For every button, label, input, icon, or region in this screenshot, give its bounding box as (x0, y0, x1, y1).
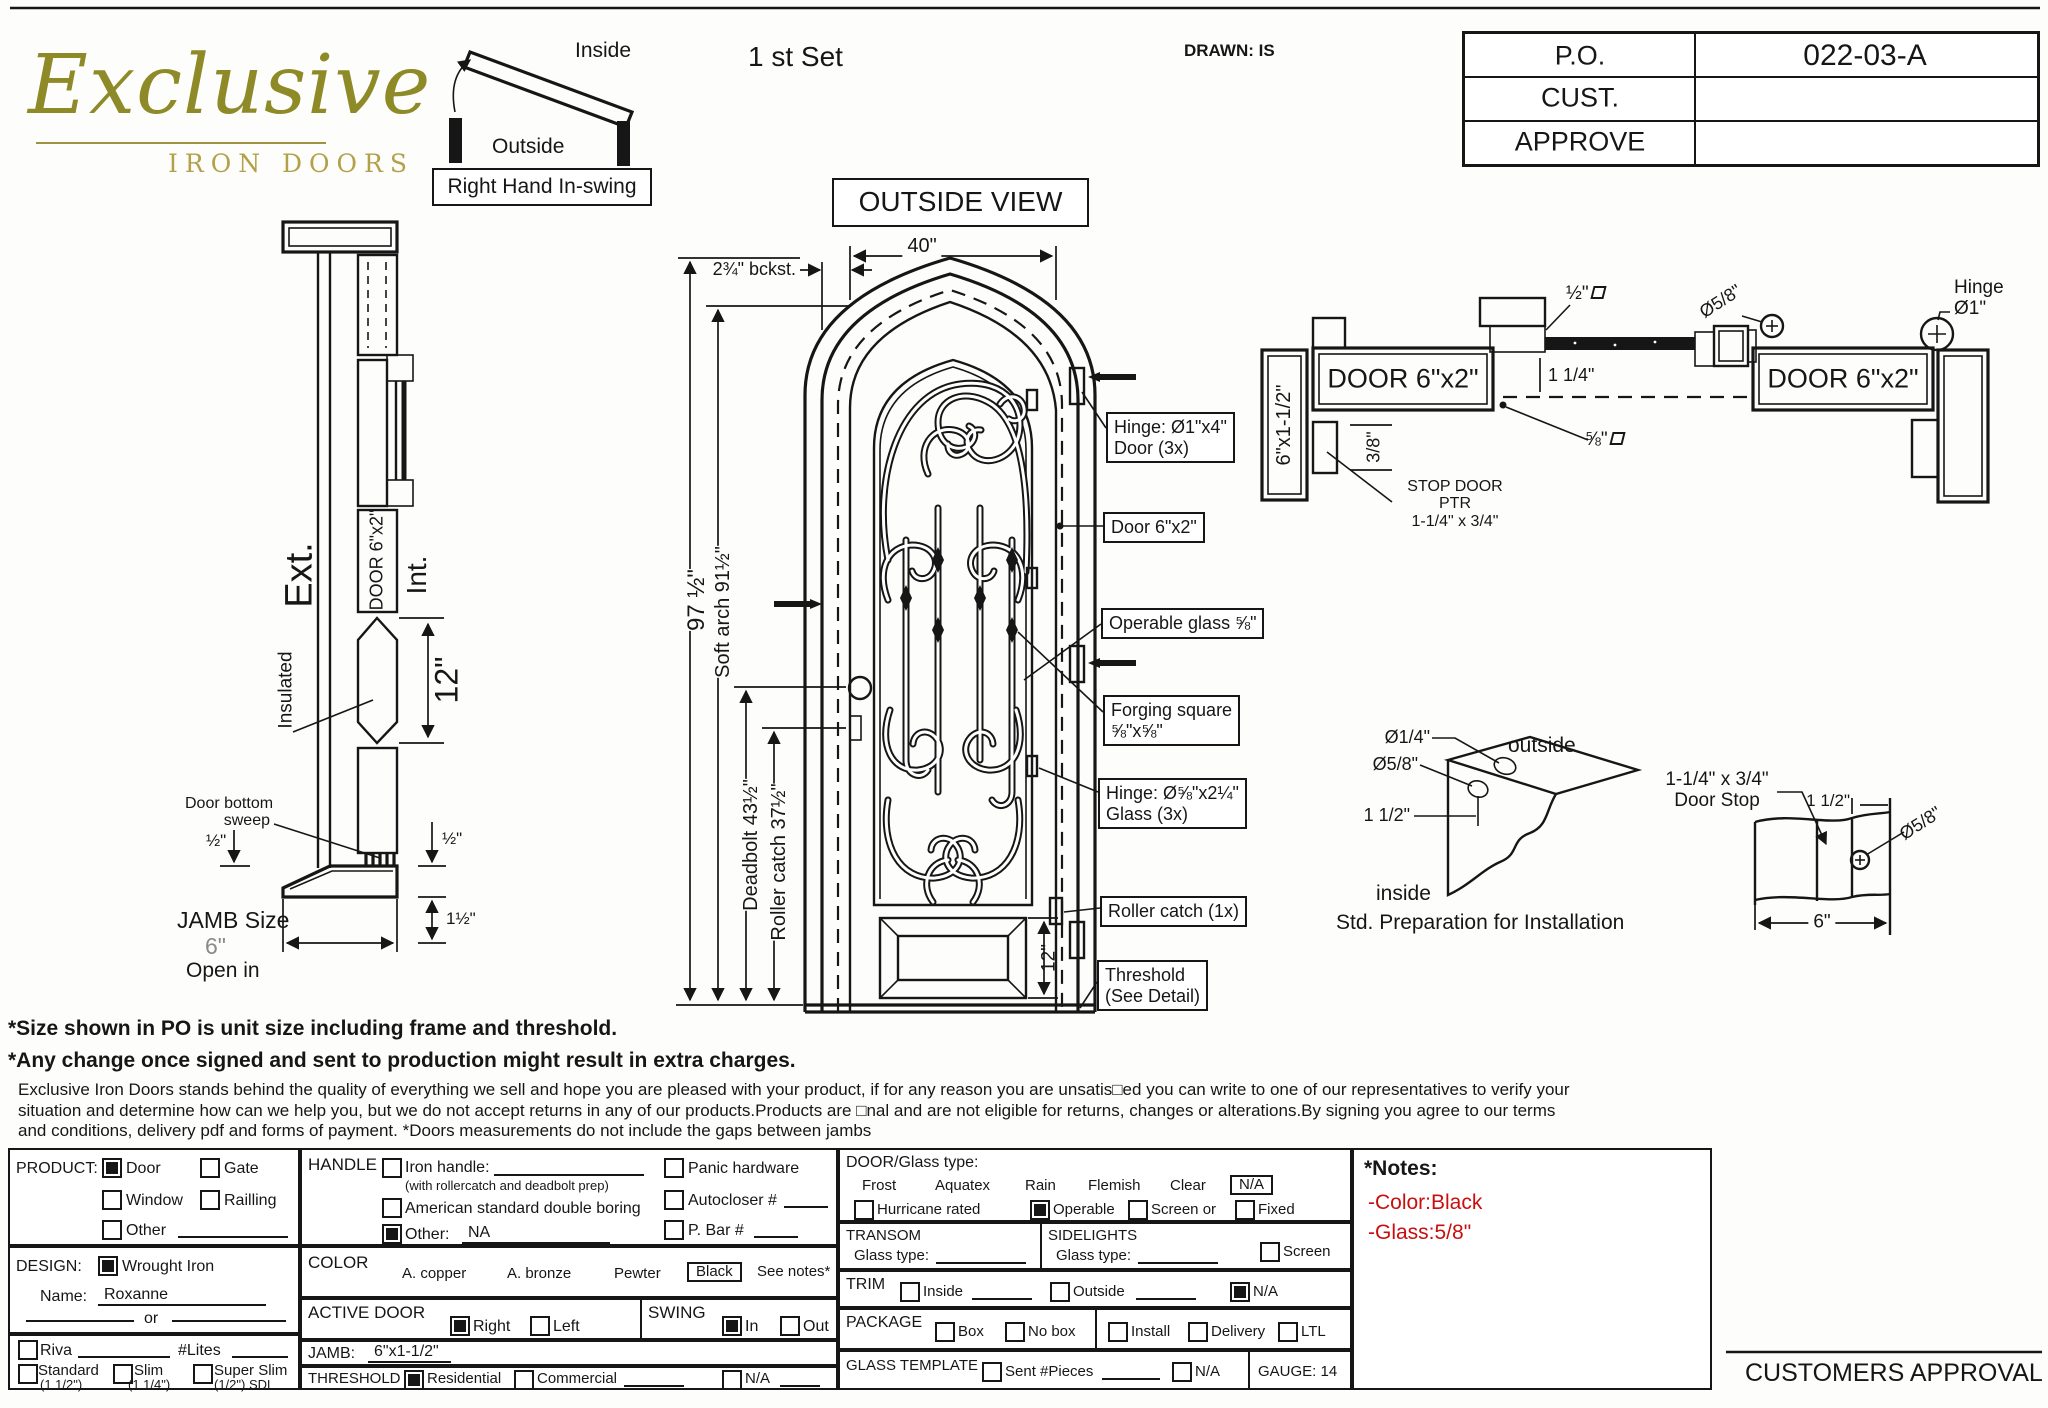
package-nobox-label: No box (1028, 1324, 1076, 1340)
customers-approval-label: CUSTOMERS APPROVAL (1745, 1360, 2043, 1387)
color-pewter[interactable]: Pewter (614, 1266, 661, 1282)
sidelights-glass-label: Glass type: (1056, 1248, 1131, 1264)
handle-other-value[interactable]: NA (462, 1224, 610, 1244)
dim-half-right: ½" (442, 830, 462, 848)
checkbox-screen-or[interactable] (1128, 1200, 1148, 1220)
iron-handle-note: (with rollercatch and deadbolt prep) (405, 1179, 609, 1193)
section-insulated-label: Insulated (277, 651, 298, 728)
pbar-label: P. Bar # (688, 1222, 744, 1239)
trim-outside-blank[interactable] (1136, 1298, 1196, 1300)
riva-blank[interactable] (78, 1356, 170, 1358)
checkbox-door[interactable] (102, 1158, 122, 1178)
handle-panel: HANDLE Iron handle: (with rollercatch an… (300, 1148, 838, 1246)
checkbox-swing-out[interactable] (780, 1316, 800, 1336)
sidelights-screen-label: Screen (1283, 1244, 1331, 1260)
checkbox-operable[interactable] (1030, 1200, 1050, 1220)
color-bronze[interactable]: A. bronze (507, 1266, 571, 1282)
product-panel: PRODUCT: Door Gate Window Railling Other (8, 1148, 300, 1246)
po-label: P.O. (1555, 41, 1606, 70)
stop-label: 1-1/4" x 3/4"Door Stop (1660, 770, 1774, 811)
deadbolt-dim: Deadbolt 43½" (741, 779, 763, 911)
stop-width-dim: 6" (1808, 913, 1835, 934)
package-ltl-label: LTL (1301, 1324, 1326, 1340)
color-label: COLOR (308, 1254, 368, 1272)
checkbox-trim-inside[interactable] (900, 1282, 920, 1302)
checkbox-riva[interactable] (18, 1340, 38, 1360)
design-size-panel: Riva #Lites Standard (1 1/2") Slim (1 1/… (8, 1334, 300, 1390)
autocloser-blank[interactable] (784, 1206, 828, 1208)
note-line-1: *Size shown in PO is unit size including… (8, 1018, 617, 1041)
square-stock-icon (1609, 432, 1625, 445)
checkbox-trim-outside[interactable] (1050, 1282, 1070, 1302)
product-railling-label: Railling (224, 1192, 276, 1209)
side-note-glass: -Glass:5/8" (1368, 1222, 1471, 1245)
po-table: P.O. 022-03-A CUST. APPROVE (1462, 31, 2040, 167)
side-notes-title: *Notes: (1364, 1158, 1438, 1181)
active-right-label: Right (473, 1318, 510, 1335)
callout-forging-square: Forging square⅝"x⅝" (1103, 695, 1240, 746)
roller-catch-dim: Roller catch 37½" (769, 783, 791, 940)
checkbox-active-left[interactable] (530, 1316, 550, 1336)
transom-label: TRANSOM (846, 1228, 921, 1244)
note-paragraph: Exclusive Iron Doors stands behind the q… (18, 1080, 1578, 1142)
prep-dia-quarter: Ø1/4" (1360, 728, 1430, 747)
checkbox-package-delivery[interactable] (1188, 1322, 1208, 1342)
swing-type-label: Right Hand In-swing (432, 168, 652, 206)
package-label: PACKAGE (846, 1314, 922, 1331)
glass-selected[interactable]: N/A (1230, 1175, 1273, 1195)
logo-subtitle: IRON DOORS (168, 150, 414, 177)
panel-height-dim: 12" (1040, 944, 1061, 972)
open-in-label: Open in (186, 960, 260, 983)
glass-flemish[interactable]: Flemish (1088, 1178, 1141, 1194)
checkbox-template-sent[interactable] (982, 1362, 1002, 1382)
glass-type-label: DOOR/Glass type: (846, 1154, 978, 1171)
side-note-color: -Color:Black (1368, 1192, 1482, 1215)
glass-clear[interactable]: Clear (1170, 1178, 1206, 1194)
design-name-label: Name: (40, 1288, 87, 1305)
jamb-size-label: JAMB Size (177, 908, 289, 933)
stop-dim-one-half: 1 1/2" (1798, 792, 1850, 810)
active-door-label: ACTIVE DOOR (308, 1304, 425, 1322)
standard-sub-label: (1 1/2") (40, 1378, 82, 1392)
sidelights-label: SIDELIGHTS (1048, 1228, 1137, 1244)
design-panel: DESIGN: Wrought Iron Name: Roxanne or (8, 1246, 300, 1334)
backset-dim: 2¾" bckst. (690, 260, 796, 279)
cust-label: CUST. (1541, 83, 1619, 112)
color-copper[interactable]: A. copper (402, 1266, 466, 1282)
square-stock-icon (1590, 286, 1606, 299)
product-other-label: Other (126, 1222, 166, 1239)
checkbox-swing-in[interactable] (722, 1316, 742, 1336)
template-sent-blank[interactable] (1102, 1378, 1160, 1380)
checkbox-package-ltl[interactable] (1278, 1322, 1298, 1342)
checkbox-window[interactable] (102, 1190, 122, 1210)
checkbox-wrought-iron[interactable] (98, 1256, 118, 1276)
plan-hinge-label: HingeØ1" (1954, 278, 2004, 319)
checkbox-super-slim[interactable] (193, 1364, 213, 1384)
checkbox-residential[interactable] (404, 1370, 424, 1390)
section-glass-height-dim: 12" (430, 657, 465, 704)
dim-one-half: 1½" (446, 910, 476, 928)
threshold-na-blank[interactable] (780, 1385, 820, 1387)
note-line-2: *Any change once signed and sent to prod… (8, 1050, 796, 1073)
checkbox-american-boring[interactable] (382, 1198, 402, 1218)
american-boring-label: American standard double boring (405, 1200, 641, 1217)
logo-script: Exclusive (28, 42, 431, 131)
callout-hinge-glass: Hinge: Ø⅝"x2¼"Glass (3x) (1098, 778, 1247, 829)
handle-other-label: Other: (405, 1226, 449, 1243)
operable-label: Operable (1053, 1202, 1115, 1218)
design-wrought-label: Wrought Iron (122, 1258, 214, 1275)
prep-dia-five-eighths: Ø5/8" (1348, 755, 1418, 774)
package-box-label: Box (958, 1324, 984, 1340)
width-dim: 40" (902, 236, 941, 258)
plan-one-quarter-dim: 1 1/4" (1548, 366, 1594, 385)
product-window-label: Window (126, 1192, 183, 1209)
iron-handle-blank[interactable] (494, 1174, 644, 1176)
checkbox-package-install[interactable] (1108, 1322, 1128, 1342)
trim-outside-label: Outside (1073, 1284, 1125, 1300)
transom-glass-blank[interactable] (936, 1262, 1026, 1264)
checkbox-sidelights-screen[interactable] (1260, 1242, 1280, 1262)
callout-hinge-door: Hinge: Ø1"x4"Door (3x) (1106, 412, 1235, 463)
lites-label: #Lites (178, 1342, 221, 1359)
glass-frost[interactable]: Frost (862, 1178, 896, 1194)
checkbox-gate[interactable] (200, 1158, 220, 1178)
checkbox-railling[interactable] (200, 1190, 220, 1210)
trim-inside-label: Inside (923, 1284, 963, 1300)
slim-sub-label: (1 1/4") (128, 1378, 170, 1392)
prep-detail-drawing (1414, 737, 1638, 895)
glass-type-panel: DOOR/Glass type: Frost Aquatex Rain Flem… (838, 1148, 1352, 1222)
dim-half-left: ½" (206, 832, 226, 850)
template-sent-label: Sent #Pieces (1005, 1364, 1093, 1380)
soft-arch-dim: Soft arch 91½" (713, 546, 735, 678)
hurricane-label: Hurricane rated (877, 1202, 980, 1218)
glass-template-panel: GLASS TEMPLATE Sent #Pieces N/A GAUGE: 1… (838, 1350, 1352, 1390)
checkbox-package-box[interactable] (935, 1322, 955, 1342)
checkbox-panic-hardware[interactable] (664, 1158, 684, 1178)
glass-rain[interactable]: Rain (1025, 1178, 1056, 1194)
handle-label: HANDLE (308, 1156, 377, 1174)
section-door-label: DOOR 6"x2" (367, 510, 386, 611)
trim-inside-blank[interactable] (972, 1298, 1032, 1300)
lites-blank[interactable] (232, 1356, 288, 1358)
plan-section-drawing (1262, 298, 1988, 502)
checkbox-package-nobox[interactable] (1005, 1322, 1025, 1342)
checkbox-standard[interactable] (18, 1364, 38, 1384)
checkbox-other-product[interactable] (102, 1220, 122, 1240)
color-see-notes: See notes* (757, 1264, 830, 1280)
checkbox-template-na[interactable] (1172, 1362, 1192, 1382)
drawn-label: DRAWN: IS (1184, 42, 1275, 60)
checkbox-commercial[interactable] (514, 1370, 534, 1390)
transom-sidelights-panel: TRANSOM Glass type: SIDELIGHTS Glass typ… (838, 1222, 1352, 1270)
callout-operable-glass: Operable glass ⅝" (1101, 608, 1264, 639)
design-label: DESIGN: (16, 1258, 82, 1275)
checkbox-iron-handle[interactable] (382, 1158, 402, 1178)
section-int-label: Int. (402, 556, 432, 595)
section-ext-label: Ext. (279, 542, 320, 607)
screen-or-label: Screen or (1151, 1202, 1216, 1218)
trim-panel: TRIM Inside Outside N/A (838, 1270, 1352, 1308)
checkbox-threshold-na[interactable] (722, 1370, 742, 1390)
approve-label: APPROVE (1515, 127, 1646, 156)
jamb-label: JAMB: (308, 1345, 355, 1362)
residential-label: Residential (427, 1371, 501, 1387)
glass-aquatex[interactable]: Aquatex (935, 1178, 990, 1194)
plan-three-eighths-dim: 3/8" (1364, 431, 1383, 462)
callout-roller-catch: Roller catch (1x) (1100, 896, 1247, 927)
package-install-label: Install (1131, 1324, 1170, 1340)
logo-underline (36, 142, 326, 144)
glass-template-label: GLASS TEMPLATE (846, 1358, 978, 1374)
prep-outside-label: outside (1508, 735, 1576, 758)
panic-hardware-label: Panic hardware (688, 1160, 799, 1177)
callout-door: Door 6"x2" (1103, 512, 1205, 543)
checkbox-hurricane[interactable] (854, 1200, 874, 1220)
riva-label: Riva (40, 1342, 72, 1359)
design-or-label: or (144, 1310, 158, 1327)
prep-caption: Std. Preparation for Installation (1336, 912, 1624, 935)
plan-door-left-label: DOOR 6"x2" (1327, 364, 1478, 393)
swing-outside-label: Outside (492, 136, 564, 159)
side-notes-panel: *Notes: -Color:Black -Glass:5/8" (1352, 1148, 1712, 1390)
template-na-label: N/A (1195, 1364, 1220, 1380)
checkbox-trim-na[interactable] (1230, 1282, 1250, 1302)
color-panel: COLOR A. copper A. bronze Pewter Black S… (300, 1246, 838, 1298)
checkbox-pbar[interactable] (664, 1220, 684, 1240)
threshold-panel: THRESHOLD Residential Commercial N/A (300, 1366, 838, 1390)
trim-label: TRIM (846, 1276, 885, 1293)
swing-in-label: In (745, 1318, 758, 1335)
sidelights-glass-blank[interactable] (1138, 1262, 1218, 1264)
super-slim-sub-label: (1/2") SDL (214, 1378, 274, 1392)
plan-door-right-label: DOOR 6"x2" (1767, 364, 1918, 393)
prep-dim: 1 1/2" (1340, 806, 1410, 825)
product-door-label: Door (126, 1160, 161, 1177)
checkbox-autocloser[interactable] (664, 1190, 684, 1210)
callout-threshold: Threshold(See Detail) (1097, 960, 1208, 1011)
height-dim: 97 ½" (684, 569, 710, 631)
autocloser-label: Autocloser # (688, 1192, 777, 1209)
checkbox-handle-other[interactable] (382, 1224, 402, 1244)
plan-stop-door-label: STOP DOORPTR1-1/4" x 3/4" (1395, 478, 1515, 530)
po-value[interactable]: 022-03-A (1803, 40, 1926, 72)
prep-inside-label: inside (1376, 883, 1431, 906)
threshold-na-label: N/A (745, 1371, 770, 1387)
transom-glass-label: Glass type: (854, 1248, 929, 1264)
trim-na-label: N/A (1253, 1284, 1278, 1300)
package-delivery-label: Delivery (1211, 1324, 1265, 1340)
drawing-sheet: .s1{stroke:#161616;stroke-width:1.6;fill… (0, 0, 2048, 1408)
commercial-label: Commercial (537, 1371, 617, 1387)
active-swing-panel: ACTIVE DOOR Right Left SWING In Out (300, 1298, 838, 1340)
pbar-blank[interactable] (754, 1236, 798, 1238)
plan-jamb-left-label: 6"x1-1/2" (1274, 385, 1296, 466)
package-panel: PACKAGE Box No box Install Delivery LTL (838, 1308, 1352, 1350)
plan-half-square-dim: ½" (1566, 284, 1605, 305)
swing-inside-label: Inside (575, 40, 631, 63)
color-selected[interactable]: Black (687, 1262, 742, 1282)
design-name-value[interactable]: Roxanne (98, 1286, 266, 1306)
checkbox-fixed[interactable] (1235, 1200, 1255, 1220)
plan-five-eighths-square-dim: ⅝" (1585, 430, 1624, 451)
commercial-blank[interactable] (624, 1385, 684, 1387)
product-label: PRODUCT: (16, 1160, 98, 1177)
sweep-label: Door bottomsweep (185, 795, 270, 830)
set-label: 1 st Set (748, 42, 843, 72)
active-left-label: Left (553, 1318, 580, 1335)
jamb-size-value: 6" (205, 934, 226, 959)
fixed-label: Fixed (1258, 1202, 1295, 1218)
swing-out-label: Out (803, 1318, 829, 1335)
jamb-panel: JAMB: 6"x1-1/2" (300, 1340, 838, 1366)
swing-label: SWING (648, 1304, 706, 1322)
checkbox-active-right[interactable] (450, 1316, 470, 1336)
view-title: OUTSIDE VIEW (832, 178, 1089, 227)
product-other-blank[interactable] (178, 1236, 288, 1238)
iron-handle-label: Iron handle: (405, 1159, 490, 1176)
jamb-value[interactable]: 6"x1-1/2" (368, 1343, 451, 1363)
gauge-label: GAUGE: 14 (1258, 1364, 1337, 1380)
product-gate-label: Gate (224, 1160, 259, 1177)
threshold-label: THRESHOLD (308, 1371, 401, 1387)
